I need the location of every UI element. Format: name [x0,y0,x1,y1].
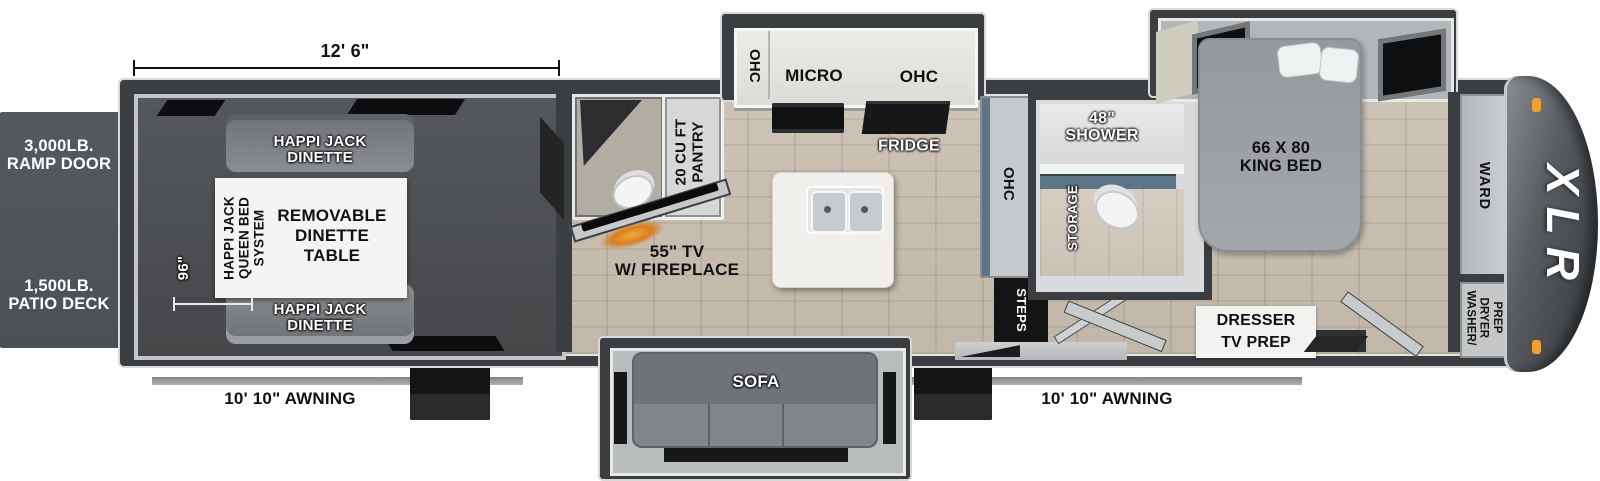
sink-drain-left [824,206,831,213]
brand-logo: XLR [1537,164,1587,292]
ohc-left-label: OHC [746,49,762,83]
dimension-tick-right [558,60,560,76]
happi-jack-dinette-top-label: HAPPI JACK DINETTE [230,134,410,166]
garage-width-dimension: 12' 6" [250,42,440,61]
bed-pillow-left [1276,41,1324,78]
main-entry-step [914,364,992,420]
steps-label: STEPS [1014,288,1028,332]
ramp-door-label: 3,000LB. RAMP DOOR [0,138,118,174]
sofa-label: SOFA [732,373,779,391]
dimension-tick-left [133,60,135,76]
cooktop [772,103,844,133]
garage-depth-dimension: 96" [176,256,192,280]
sofa-cushion-divider-2 [782,404,784,446]
cap-marker-light-top [1532,98,1541,112]
kitchen-counter [734,28,978,108]
bed-pillow-right [1318,46,1359,84]
kitchen-ohc-left-divider [768,31,770,99]
ohc-right-label: OHC [900,68,938,86]
garage-kitchen-wall [556,94,572,352]
ohc-tall-label: OHC [1000,167,1016,201]
shower-ledge [1040,164,1184,174]
bedroom-front-wall [1448,92,1460,352]
sofa [632,352,878,448]
happi-jack-dinette-bottom-label: HAPPI JACK DINETTE [230,302,410,334]
shower-label: 48" SHOWER [1042,110,1162,145]
patio-deck-label: 1,500LB. PATIO DECK [0,278,118,314]
washer-dryer-label: WASHER/ DRYER PREP [1463,290,1503,345]
pantry-label: 20 CU FT PANTRY [674,119,707,186]
sofa-cushion-divider-1 [708,404,710,446]
king-bed-label: 66 X 80 KING BED [1208,140,1354,176]
garage-window-top [347,99,465,115]
dimension-line [133,67,560,69]
removable-dinette-table-label: REMOVABLE DINETTE TABLE [262,206,402,266]
micro-label: MICRO [785,67,843,85]
queen-bed-system-label: HAPPI JACK QUEEN BED SYSTEM [221,196,266,280]
sofa-slide-window-left [614,372,627,444]
fridge-label: FRIDGE [878,137,940,154]
tv-fireplace-label: 55" TV W/ FIREPLACE [592,243,762,280]
entry-landing [955,342,1127,360]
awning-left-label: 10' 10" AWNING [195,390,385,408]
ward-label: WARD [1475,162,1491,210]
garage-depth-line [173,303,253,305]
bedroom-window-right [1378,29,1446,102]
garage-depth-tick-left [173,297,175,311]
dresser-label: DRESSER TV PREP [1196,310,1316,353]
sofa-coffee-table [664,448,848,462]
floorplan-canvas: 3,000LB. RAMP DOOR 1,500LB. PATIO DECK 1… [0,0,1600,481]
ward-wd-divider [1456,274,1506,282]
garage-depth-tick-right [251,297,253,311]
fridge [862,101,951,134]
sofa-slide-window-right [883,372,896,444]
garage-window-top-left [157,100,226,116]
storage-label: STORAGE [1066,185,1080,250]
cap-marker-light-bottom [1532,340,1541,354]
sink-drain-right [861,206,868,213]
garage-entry-step [410,364,490,420]
awning-right-label: 10' 10" AWNING [1012,390,1202,408]
